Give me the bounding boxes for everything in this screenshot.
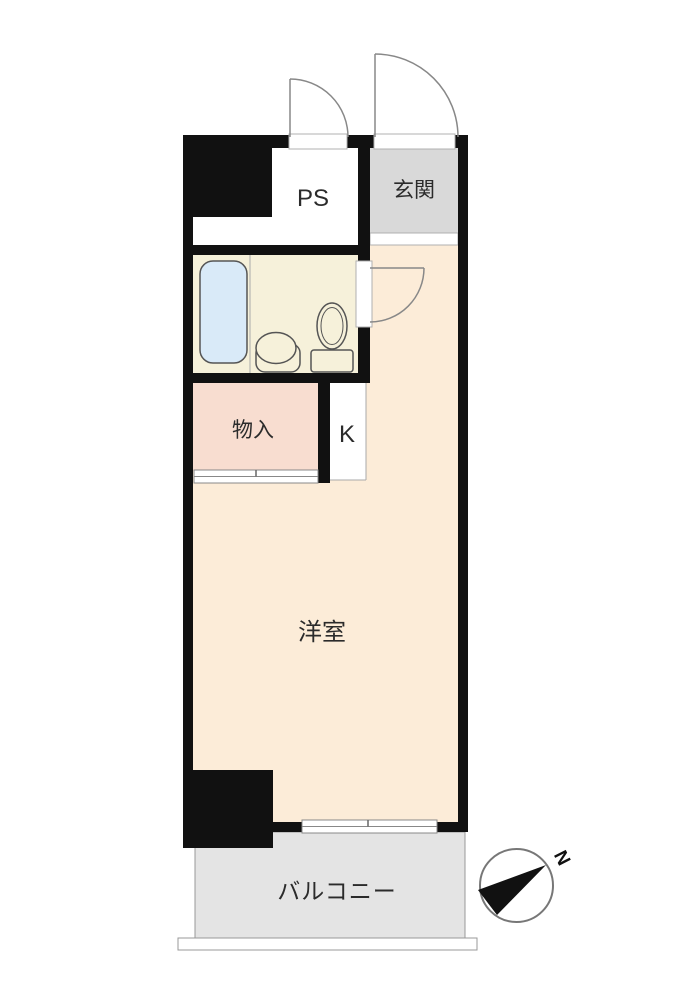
floor-plan-canvas: N PS 玄関 物入 K 洋室 バルコニー bbox=[0, 0, 700, 1000]
washbasin-bowl bbox=[256, 333, 296, 364]
entrance-label: 玄関 bbox=[393, 179, 435, 202]
wall-below-bathroom bbox=[183, 373, 370, 383]
wall-below-ps bbox=[183, 245, 370, 255]
wall-left bbox=[183, 135, 193, 848]
compass-north-label: N bbox=[549, 847, 574, 869]
entrance-door-arc bbox=[375, 54, 458, 137]
wall-ps-entrance-divider bbox=[358, 135, 370, 245]
storage-label: 物入 bbox=[232, 419, 274, 442]
wall-right bbox=[458, 135, 468, 832]
entrance-step bbox=[370, 233, 458, 245]
balcony-ledge bbox=[178, 938, 477, 950]
kitchen-label: K bbox=[339, 421, 355, 448]
bathtub bbox=[200, 261, 247, 363]
ps-door-opening bbox=[289, 134, 347, 149]
wall-storage-right bbox=[318, 383, 330, 483]
compass: N bbox=[478, 847, 574, 922]
bathroom-door-opening bbox=[356, 261, 372, 327]
ps-label: PS bbox=[297, 185, 329, 212]
floor-plan: N PS 玄関 物入 K 洋室 バルコニー bbox=[0, 0, 700, 1000]
toilet-tank bbox=[311, 350, 353, 372]
western-room-label: 洋室 bbox=[298, 619, 346, 646]
wall-block-top-left bbox=[183, 135, 272, 217]
balcony-label: バルコニー bbox=[277, 878, 397, 904]
wall-pillar-bottom-left bbox=[183, 770, 273, 848]
ps-door-arc bbox=[290, 79, 348, 137]
entrance-door-opening bbox=[374, 134, 455, 149]
